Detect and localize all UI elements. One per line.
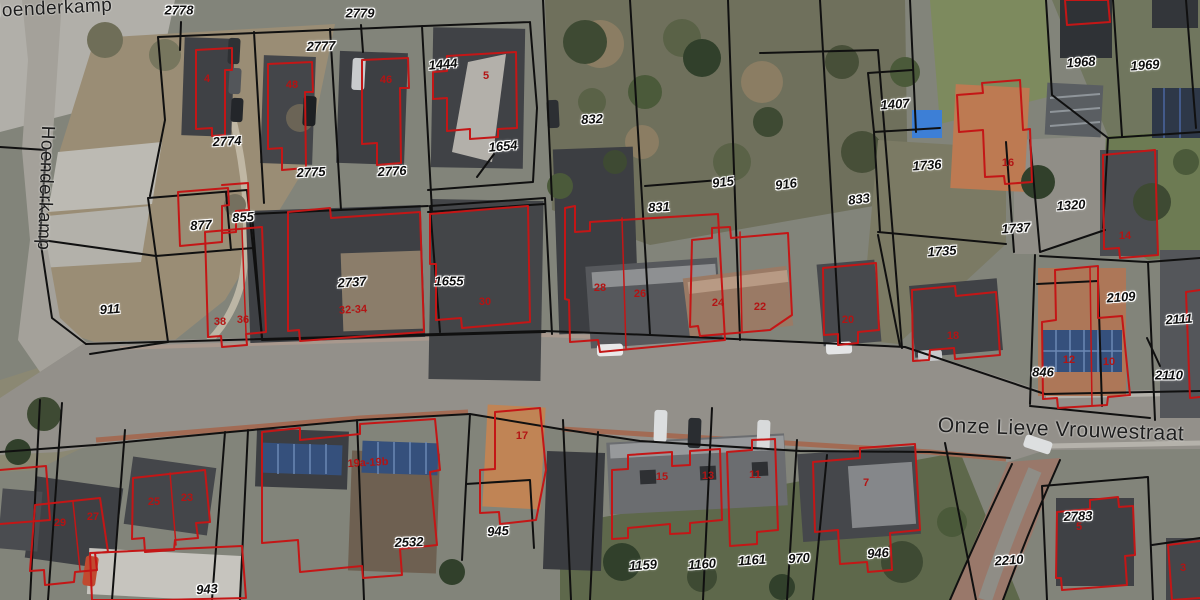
map-canvas[interactable]: 2778277927771444277427752776165483283191… [0, 0, 1200, 600]
aerial-photo-layer [0, 0, 1200, 600]
